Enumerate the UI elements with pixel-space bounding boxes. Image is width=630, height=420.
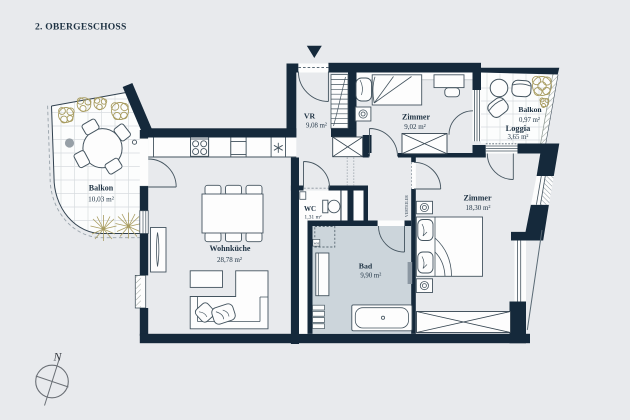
svg-text:18,30 m²: 18,30 m² — [465, 204, 490, 212]
svg-text:WM: WM — [313, 242, 319, 246]
svg-text:Zimmer: Zimmer — [402, 113, 430, 122]
svg-text:9,08 m²: 9,08 m² — [306, 122, 327, 129]
svg-text:Balkon: Balkon — [89, 184, 114, 193]
svg-text:VR: VR — [304, 112, 316, 121]
svg-text:VERTEILER: VERTEILER — [405, 195, 409, 217]
svg-text:Zimmer: Zimmer — [464, 193, 492, 202]
svg-text:Bad: Bad — [359, 261, 373, 270]
svg-text:1,31 m²: 1,31 m² — [304, 215, 322, 221]
svg-text:9,02 m²: 9,02 m² — [404, 123, 426, 131]
svg-text:Loggia: Loggia — [506, 124, 531, 133]
svg-text:0,97 m²: 0,97 m² — [519, 117, 540, 124]
svg-text:10,03 m²: 10,03 m² — [88, 196, 114, 204]
svg-text:9,90 m²: 9,90 m² — [360, 273, 381, 280]
svg-text:Wohnküche: Wohnküche — [210, 244, 251, 253]
svg-text:N: N — [53, 350, 63, 364]
svg-text:2. OBERGESCHOSS: 2. OBERGESCHOSS — [35, 22, 127, 33]
svg-text:28,78 m²: 28,78 m² — [217, 256, 242, 264]
svg-text:WC: WC — [304, 205, 316, 213]
svg-text:Balkon: Balkon — [518, 105, 542, 114]
svg-text:3,65 m²: 3,65 m² — [508, 134, 529, 141]
